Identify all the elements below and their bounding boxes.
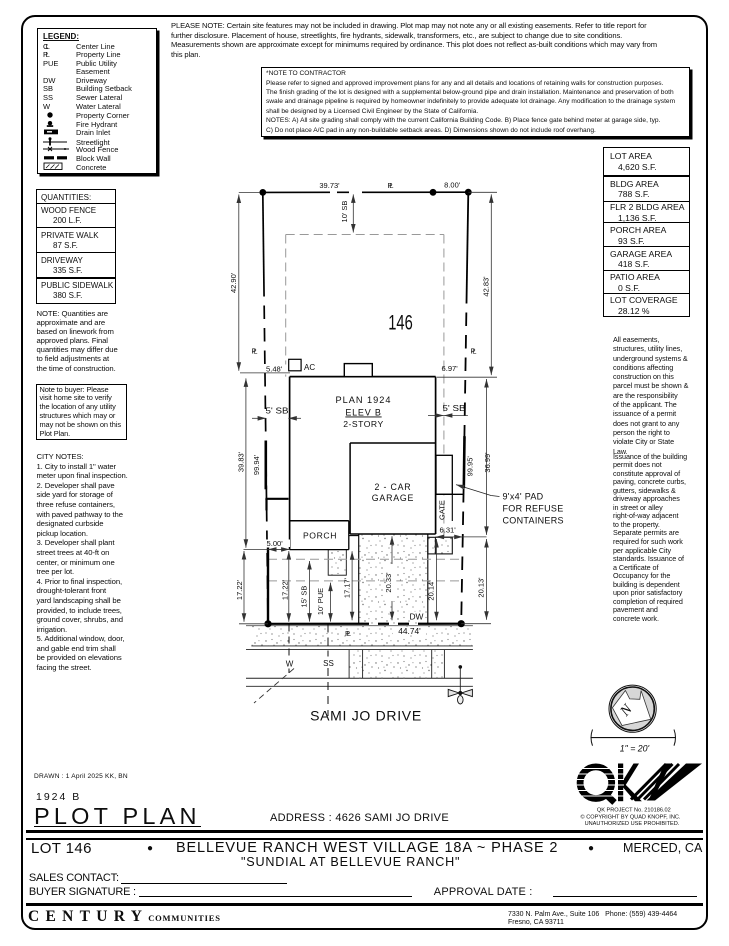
svg-text:17.17': 17.17' <box>342 577 351 598</box>
svg-text:L: L <box>389 181 393 190</box>
svg-text:UNAUTHORIZED USE PROHIBITED.: UNAUTHORIZED USE PROHIBITED. <box>585 821 680 827</box>
svg-text:2 - CAR: 2 - CAR <box>375 482 412 492</box>
svg-text:SS: SS <box>323 659 334 668</box>
svg-text:42.90': 42.90' <box>229 272 238 293</box>
svg-text:6.97': 6.97' <box>442 364 459 373</box>
svg-text:6.31': 6.31' <box>440 526 457 535</box>
svg-text:10' SB: 10' SB <box>340 201 349 223</box>
svg-text:PLAN 1924: PLAN 1924 <box>336 395 392 405</box>
svg-text:44.74': 44.74' <box>398 626 421 636</box>
svg-text:W: W <box>286 660 294 669</box>
svg-text:15' SB: 15' SB <box>300 586 309 608</box>
svg-text:5' SB: 5' SB <box>443 404 466 413</box>
svg-text:8.00': 8.00' <box>444 181 461 190</box>
svg-text:AC: AC <box>304 363 315 372</box>
svg-text:GARAGE: GARAGE <box>372 493 414 503</box>
svg-text:20.33': 20.33' <box>384 572 393 593</box>
svg-text:20.13': 20.13' <box>477 577 486 598</box>
svg-text:© COPYRIGHT BY QUAD KNOPF, INC: © COPYRIGHT BY QUAD KNOPF, INC. <box>581 814 681 821</box>
svg-text:GATE: GATE <box>438 500 447 520</box>
svg-text:5' SB: 5' SB <box>266 407 289 416</box>
svg-text:17.22': 17.22' <box>280 579 289 600</box>
svg-text:L: L <box>253 347 257 356</box>
svg-text:99.95': 99.95' <box>465 456 474 477</box>
svg-text:1" = 20': 1" = 20' <box>620 744 650 754</box>
svg-text:FOR REFUSE: FOR REFUSE <box>503 504 564 514</box>
svg-text:CONTAINERS: CONTAINERS <box>503 516 564 526</box>
svg-text:42.83': 42.83' <box>482 276 491 297</box>
svg-text:17.22': 17.22' <box>235 579 244 600</box>
svg-text:DW: DW <box>410 612 424 622</box>
svg-text:9'x4' PAD: 9'x4' PAD <box>503 492 544 502</box>
svg-text:5.00': 5.00' <box>267 539 284 548</box>
svg-text:L: L <box>472 347 476 356</box>
svg-text:20.14': 20.14' <box>427 580 436 601</box>
svg-text:ELEV B: ELEV B <box>345 408 381 418</box>
svg-text:146: 146 <box>388 312 413 335</box>
svg-text:10' PUE: 10' PUE <box>316 588 325 615</box>
svg-text:L: L <box>347 629 351 638</box>
svg-text:PORCH: PORCH <box>303 530 337 540</box>
svg-text:SAMI JO DRIVE: SAMI JO DRIVE <box>310 708 422 724</box>
svg-text:36.99': 36.99' <box>483 452 492 473</box>
svg-text:QK PROJECT No. 210186.02: QK PROJECT No. 210186.02 <box>597 808 671 814</box>
svg-text:39.73': 39.73' <box>319 181 340 190</box>
svg-text:99.94': 99.94' <box>252 454 261 475</box>
svg-text:5.48': 5.48' <box>266 365 283 374</box>
svg-text:2-STORY: 2-STORY <box>343 419 383 429</box>
svg-text:39.83': 39.83' <box>236 451 245 472</box>
